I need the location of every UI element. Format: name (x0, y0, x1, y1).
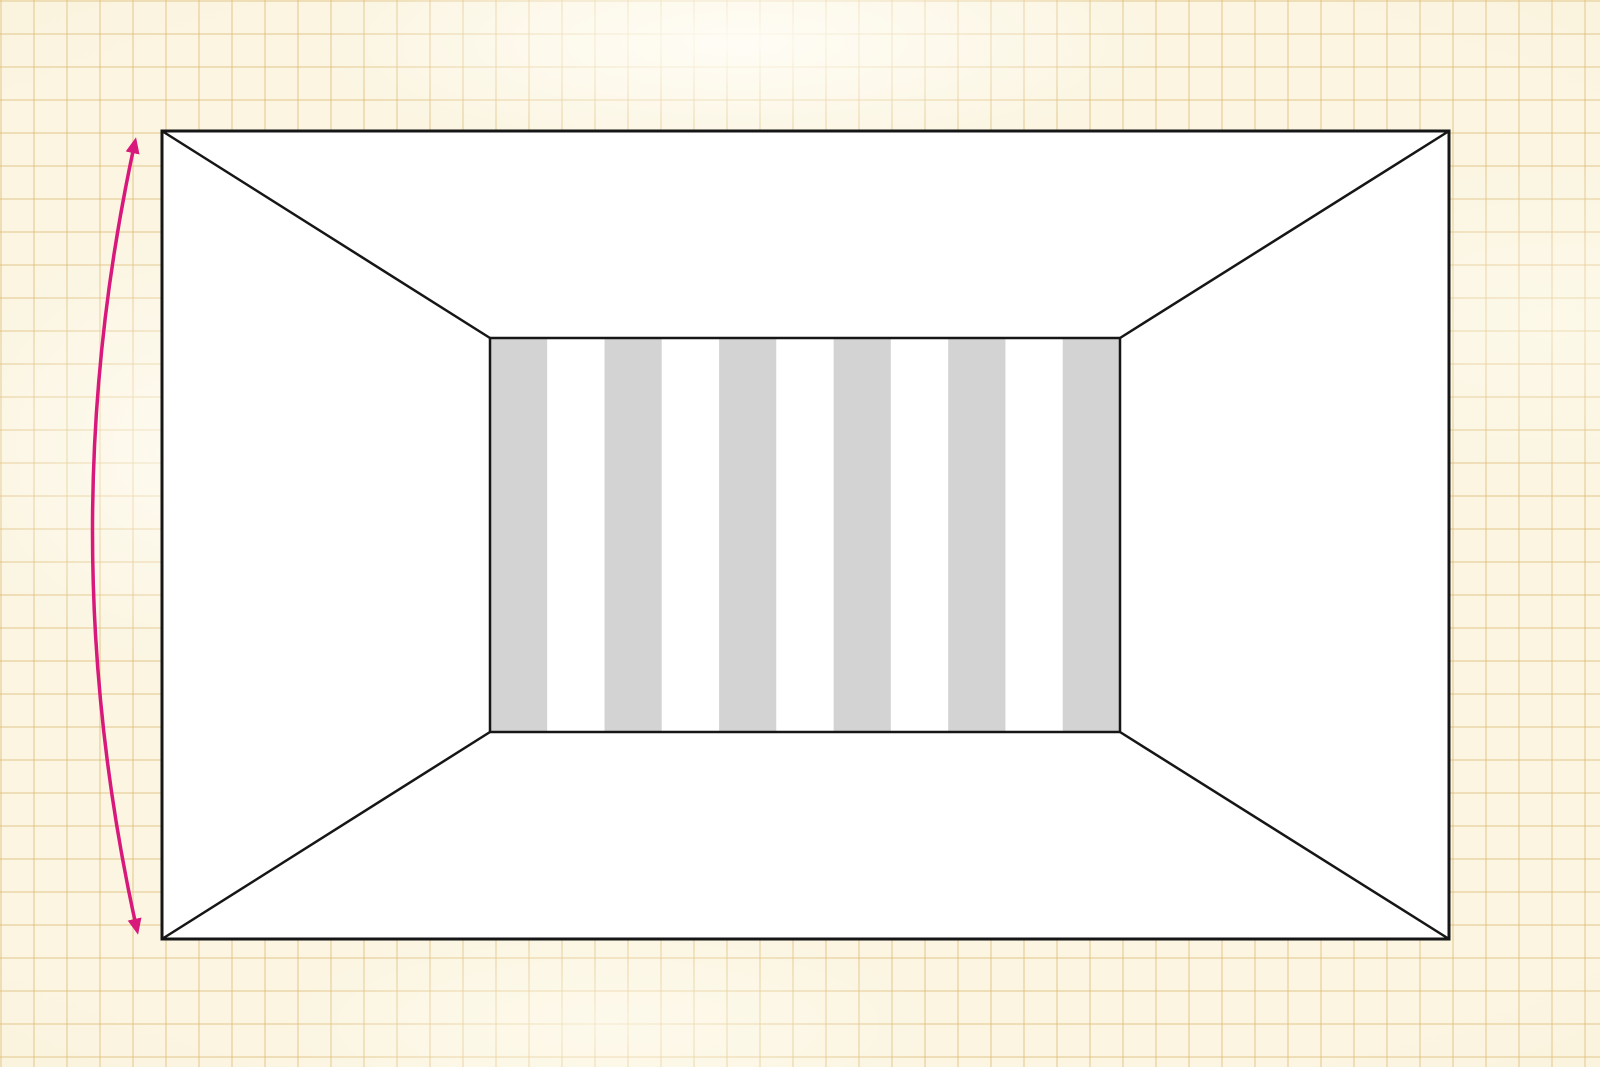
wall-stripe (1063, 338, 1120, 732)
perspective-figure (0, 0, 1600, 1067)
wall-stripe (662, 338, 719, 732)
wall-stripe (1005, 338, 1062, 732)
wall-stripe (605, 338, 662, 732)
height-extent-arrow (92, 142, 137, 930)
graph-paper-background (0, 0, 1600, 1067)
wall-stripe (547, 338, 604, 732)
wall-stripe (948, 338, 1005, 732)
wall-stripe (776, 338, 833, 732)
wall-stripe (719, 338, 776, 732)
wall-stripe (834, 338, 891, 732)
wall-stripe (891, 338, 948, 732)
wall-stripe (490, 338, 547, 732)
back-wall-stripes (490, 338, 1120, 732)
